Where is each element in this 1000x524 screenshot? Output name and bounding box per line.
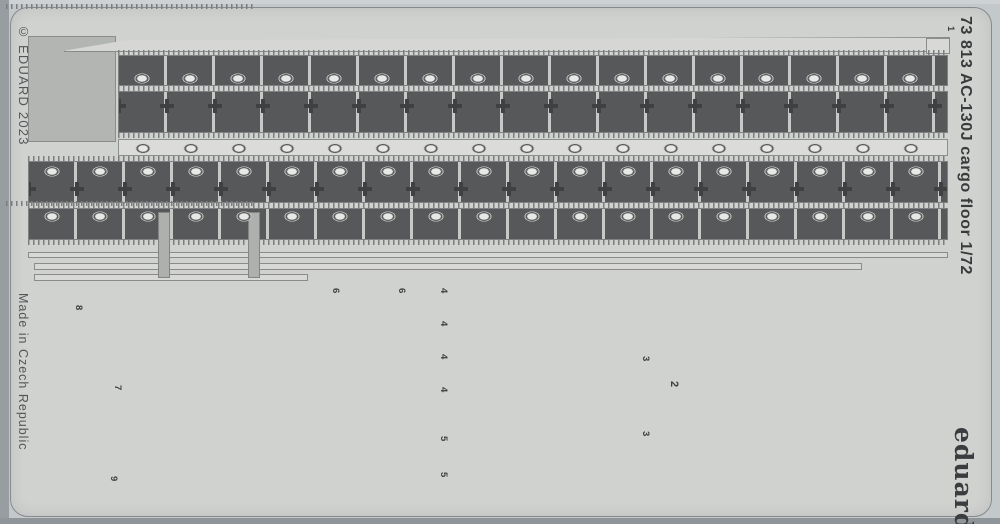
part-number-7: 7 xyxy=(112,385,123,391)
part-number-3: 3 xyxy=(640,356,651,362)
waste-wedge xyxy=(448,428,622,440)
serrated-edge xyxy=(6,4,254,9)
part1-thin-rail xyxy=(34,274,308,281)
part-number-8: 8 xyxy=(73,305,84,311)
part5-group xyxy=(448,428,622,514)
brand-logo-text: eduard xyxy=(949,427,978,524)
made-in-text: Made in Czech Republic xyxy=(16,293,30,451)
part-number-4: 4 xyxy=(438,354,449,360)
copyright-text: © EDUARD 2023 xyxy=(16,24,31,146)
tiedown-rings xyxy=(119,141,947,156)
part-number-9: 9 xyxy=(108,476,119,482)
photo-edge-bottom xyxy=(0,518,1000,524)
part5-brace xyxy=(448,440,622,468)
tiedown-cross-marks xyxy=(119,99,947,113)
part-number-5: 5 xyxy=(438,436,449,442)
part-number-4: 4 xyxy=(438,387,449,393)
serrated-edge xyxy=(118,133,948,138)
waste-wedge xyxy=(448,285,622,296)
part5-brace xyxy=(448,468,622,496)
part-number-4: 4 xyxy=(438,288,449,294)
waste-wedge xyxy=(448,496,622,506)
photo-edge-left xyxy=(0,0,9,524)
part-number-6: 6 xyxy=(396,288,407,294)
tiedown-rings xyxy=(28,164,948,179)
part-number-6: 6 xyxy=(330,288,341,294)
part1-center-rail xyxy=(118,139,948,156)
waste-wedge xyxy=(448,270,622,285)
part-number-4: 4 xyxy=(438,321,449,327)
tiedown-cross-marks xyxy=(29,182,947,196)
part4-group xyxy=(448,270,622,418)
serrated-edge xyxy=(6,201,254,206)
part1-row-b xyxy=(118,91,948,133)
product-title-text: 73 813 AC-130J cargo floor 1/72 xyxy=(956,16,974,275)
tiedown-rings xyxy=(28,209,948,224)
part-number-5: 5 xyxy=(438,472,449,478)
part-number-2: 2 xyxy=(668,381,680,388)
product-photo: © EDUARD 2023 Made in Czech Republic 73 … xyxy=(0,0,1000,524)
part-number-1: 1 xyxy=(945,26,956,32)
part-number-3: 3 xyxy=(640,431,651,437)
tiedown-rings xyxy=(118,71,948,86)
